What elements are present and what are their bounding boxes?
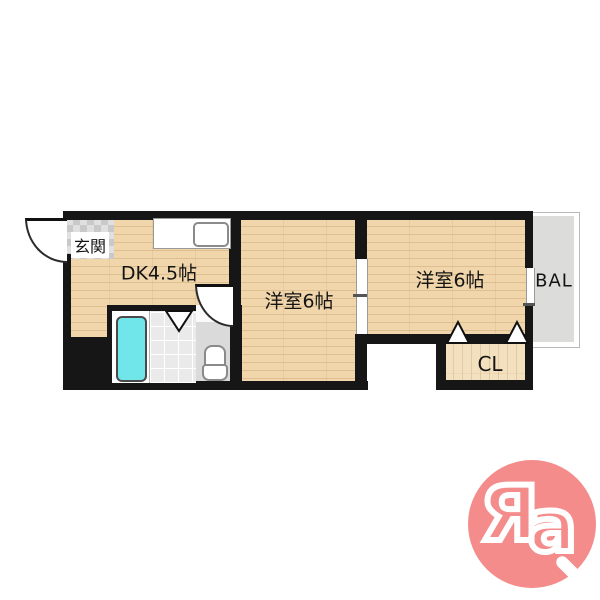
structural-black-fill bbox=[63, 337, 112, 390]
kitchen-sink-icon bbox=[193, 222, 229, 247]
wall-right-upper bbox=[525, 211, 533, 268]
bath-door-triangle-icon bbox=[159, 309, 197, 334]
balcony-window-handle bbox=[523, 303, 535, 306]
wall-center-right-upper bbox=[355, 211, 367, 259]
label-genkan: 玄関 bbox=[71, 232, 109, 258]
closet-door-triangle-icon bbox=[503, 319, 531, 345]
floorplan-image: 玄関 DK4.5帖 洋室6帖 洋室6帖 CL BAL Я a bbox=[0, 0, 600, 600]
label-dk: DK4.5帖 bbox=[121, 259, 197, 286]
sliding-door-handle bbox=[353, 294, 367, 297]
label-balcony: BAL bbox=[535, 271, 573, 292]
agency-logo: Я a bbox=[468, 460, 596, 588]
toilet-tank-icon bbox=[202, 364, 228, 381]
label-bedroom-center: 洋室6帖 bbox=[264, 287, 333, 314]
closet-door-triangle-icon bbox=[444, 319, 472, 345]
balcony-window bbox=[526, 268, 535, 306]
label-closet: CL bbox=[477, 352, 502, 376]
entrance-door-arc bbox=[25, 218, 67, 263]
wall-closet-bottom bbox=[436, 380, 533, 390]
bathtub bbox=[116, 316, 147, 382]
label-bedroom-right: 洋室6帖 bbox=[415, 266, 484, 293]
wall-top bbox=[63, 211, 533, 220]
logo-letter-a: a bbox=[528, 490, 577, 562]
